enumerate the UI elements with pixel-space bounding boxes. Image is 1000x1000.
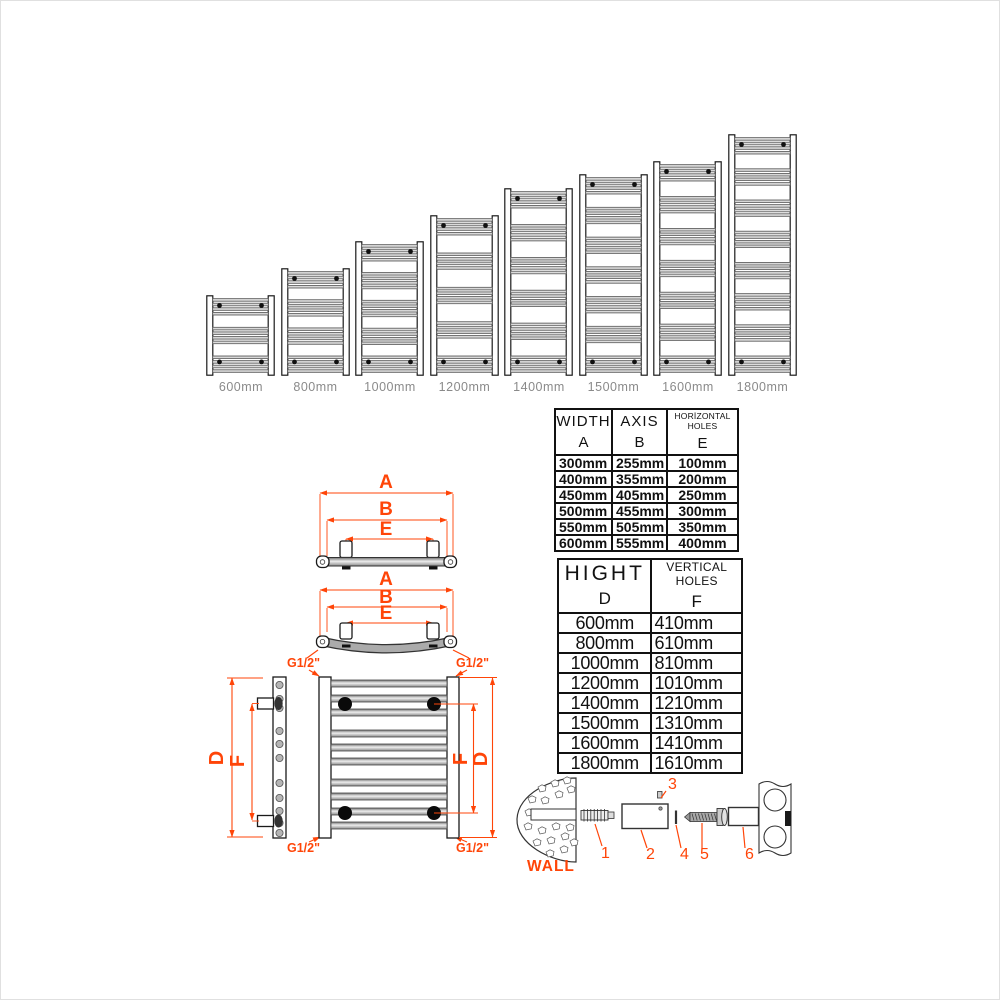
width-table-cell: 300mm	[555, 455, 612, 471]
bracket-dot	[590, 182, 595, 187]
part-bracket-body	[622, 804, 668, 829]
height-table-cell: 1410mm	[651, 733, 742, 753]
bracket-dot	[706, 360, 711, 365]
thread-label-bottom-right: G1/2"	[456, 841, 489, 855]
top-view-straight: A B E	[317, 472, 457, 570]
width-table-cell: 100mm	[667, 455, 738, 471]
table-header-row: HIGHT D VERTICAL HOLES F	[558, 559, 742, 613]
thread-label-top-right: G1/2"	[456, 656, 489, 670]
radiator-drawing	[430, 215, 499, 376]
front-view: F D	[319, 677, 497, 838]
bracket-dot	[664, 360, 669, 365]
size-label: 1500mm	[579, 380, 649, 394]
dim-label-A: A	[379, 472, 393, 493]
wall-label: WALL	[527, 858, 575, 875]
bracket-dot	[292, 276, 297, 281]
height-vertical-holes-table: HIGHT D VERTICAL HOLES F 600mm410mm800mm…	[557, 558, 743, 774]
table-row: 600mm410mm	[558, 613, 742, 633]
bracket-dot	[334, 276, 339, 281]
col-letter: B	[613, 434, 666, 451]
size-label: 600mm	[206, 380, 276, 394]
col-title: VERTICAL HOLES	[652, 560, 741, 589]
table-row: 1500mm1310mm	[558, 713, 742, 733]
size-label: 1400mm	[504, 380, 574, 394]
table-row: 500mm455mm300mm	[555, 503, 738, 519]
col-header-horizontal-holes: HORİZONTAL HOLES E	[667, 409, 738, 455]
radiator-drawing	[653, 161, 722, 376]
table-row: 450mm405mm250mm	[555, 487, 738, 503]
part-number-5: 5	[700, 846, 709, 863]
width-table-cell: 355mm	[612, 471, 667, 487]
col-title: HIGHT	[559, 562, 650, 586]
wall-bracket	[427, 623, 439, 639]
radiator-drawing	[579, 174, 648, 376]
size-label: 1600mm	[653, 380, 723, 394]
width-table-cell: 300mm	[667, 503, 738, 519]
col-letter: E	[668, 435, 737, 452]
height-table-cell: 1010mm	[651, 673, 742, 693]
col-title: WIDTH	[556, 413, 611, 430]
mounting-hardware-diagram: WALL	[506, 771, 806, 876]
part-number-3: 3	[668, 776, 677, 793]
height-table-cell: 610mm	[651, 633, 742, 653]
part-wall-plug	[581, 809, 614, 822]
height-table-cell: 1610mm	[651, 753, 742, 773]
radiator-drawing	[206, 295, 275, 376]
width-table-cell: 455mm	[612, 503, 667, 519]
height-table-cell: 1600mm	[558, 733, 651, 753]
table-row: 800mm610mm	[558, 633, 742, 653]
thread-label-bottom-left: G1/2"	[287, 841, 320, 855]
height-table-cell: 1500mm	[558, 713, 651, 733]
width-table-cell: 505mm	[612, 519, 667, 535]
col-letter: F	[652, 592, 741, 612]
part-screw	[685, 809, 728, 826]
part-number-4: 4	[680, 846, 689, 863]
width-table-cell: 550mm	[555, 519, 612, 535]
wall-section: WALL	[517, 777, 578, 875]
table-row: 1400mm1210mm	[558, 693, 742, 713]
size-label: 1000mm	[355, 380, 425, 394]
width-axis-holes-table: WIDTH A AXIS B HORİZONTAL HOLES E 300mm2…	[554, 408, 739, 552]
wall-bracket	[427, 541, 439, 558]
width-table-cell: 405mm	[612, 487, 667, 503]
width-table-cell: 200mm	[667, 471, 738, 487]
table-row: 1600mm1410mm	[558, 733, 742, 753]
drill-hole	[531, 809, 576, 820]
part-spigot-and-rail	[729, 782, 792, 856]
wall-bracket-side	[258, 698, 274, 709]
radiator-spec-sheet: 600mm800mm1000mm1200mm1400mm1500mm1600mm…	[0, 0, 1000, 1000]
part-number-6: 6	[745, 846, 754, 863]
col-letter: A	[556, 434, 611, 451]
dim-label-D: D	[206, 751, 228, 765]
bracket-dot	[366, 360, 371, 365]
bracket-dot	[483, 223, 488, 228]
bracket-dot	[408, 249, 413, 254]
col-header-width: WIDTH A	[555, 409, 612, 455]
wall-bracket	[340, 541, 352, 558]
bracket-dot	[781, 360, 786, 365]
height-table-cell: 410mm	[651, 613, 742, 633]
col-header-hight: HIGHT D	[558, 559, 651, 613]
col-title: AXIS	[613, 413, 666, 430]
mounting-dot	[338, 806, 352, 820]
bracket-dot	[292, 360, 297, 365]
table-row: 400mm355mm200mm	[555, 471, 738, 487]
bracket-dot	[590, 360, 595, 365]
table-row: 1200mm1010mm	[558, 673, 742, 693]
dim-label-E: E	[380, 603, 393, 624]
dimension-diagram: A B E A B E	[201, 461, 521, 871]
bracket-dot	[217, 303, 222, 308]
bracket-dot	[259, 360, 264, 365]
top-view-curved: A B E	[317, 569, 457, 649]
height-table-cell: 1000mm	[558, 653, 651, 673]
col-header-vertical-holes: VERTICAL HOLES F	[651, 559, 742, 613]
col-header-axis: AXIS B	[612, 409, 667, 455]
table-row: 600mm555mm400mm	[555, 535, 738, 551]
dim-label-E: E	[380, 519, 393, 540]
bracket-dot	[632, 182, 637, 187]
table-header-row: WIDTH A AXIS B HORİZONTAL HOLES E	[555, 409, 738, 455]
col-letter: D	[559, 589, 650, 609]
bracket-dot	[739, 142, 744, 147]
radiator-drawing	[504, 188, 573, 376]
bracket-dot	[706, 169, 711, 174]
radiator-drawing	[355, 241, 424, 376]
width-table-cell: 255mm	[612, 455, 667, 471]
thread-label-top-left: G1/2"	[287, 656, 320, 670]
bracket-dot	[664, 169, 669, 174]
side-view: D F	[206, 677, 286, 838]
table-row: 1800mm1610mm	[558, 753, 742, 773]
height-table-cell: 1400mm	[558, 693, 651, 713]
bracket-dot	[739, 360, 744, 365]
bracket-dot	[632, 360, 637, 365]
width-table-cell: 450mm	[555, 487, 612, 503]
dim-label-F: F	[227, 755, 249, 767]
bracket-dot	[781, 142, 786, 147]
part-number-2: 2	[646, 846, 655, 863]
bracket-dot	[515, 196, 520, 201]
bracket-dot	[259, 303, 264, 308]
wall-bracket	[340, 623, 352, 639]
bracket-dot	[408, 360, 413, 365]
bracket-dot	[557, 196, 562, 201]
height-table-cell: 800mm	[558, 633, 651, 653]
bracket-dot	[366, 249, 371, 254]
bracket-dot	[217, 360, 222, 365]
height-table-cell: 1200mm	[558, 673, 651, 693]
size-label: 1200mm	[430, 380, 500, 394]
width-table-cell: 250mm	[667, 487, 738, 503]
col-title: HORİZONTAL HOLES	[668, 412, 737, 432]
wall-bracket-side	[258, 816, 274, 827]
bracket-dot	[441, 223, 446, 228]
height-table-cell: 1800mm	[558, 753, 651, 773]
width-table-cell: 350mm	[667, 519, 738, 535]
width-table-cell: 500mm	[555, 503, 612, 519]
bracket-dot	[334, 360, 339, 365]
dim-label-F: F	[450, 753, 472, 765]
top-rail-tube	[323, 558, 450, 567]
table-row: 300mm255mm100mm	[555, 455, 738, 471]
width-table-cell: 600mm	[555, 535, 612, 551]
radiator-drawing	[728, 134, 797, 376]
height-table-cell: 600mm	[558, 613, 651, 633]
bracket-dot	[557, 360, 562, 365]
height-table-cell: 1310mm	[651, 713, 742, 733]
mounting-dot	[338, 697, 352, 711]
dim-label-D: D	[470, 752, 492, 766]
table-row: 550mm505mm350mm	[555, 519, 738, 535]
width-table-cell: 555mm	[612, 535, 667, 551]
size-label: 1800mm	[728, 380, 798, 394]
height-table-cell: 1210mm	[651, 693, 742, 713]
table-row: 1000mm810mm	[558, 653, 742, 673]
width-table-cell: 400mm	[555, 471, 612, 487]
bracket-dot	[515, 360, 520, 365]
part-number-1: 1	[601, 845, 610, 862]
dim-label-B: B	[379, 499, 393, 520]
radiator-drawing	[281, 268, 350, 376]
height-table-cell: 810mm	[651, 653, 742, 673]
bracket-dot	[441, 360, 446, 365]
size-label: 800mm	[281, 380, 351, 394]
bracket-dot	[483, 360, 488, 365]
width-table-cell: 400mm	[667, 535, 738, 551]
left-rail	[319, 677, 331, 838]
